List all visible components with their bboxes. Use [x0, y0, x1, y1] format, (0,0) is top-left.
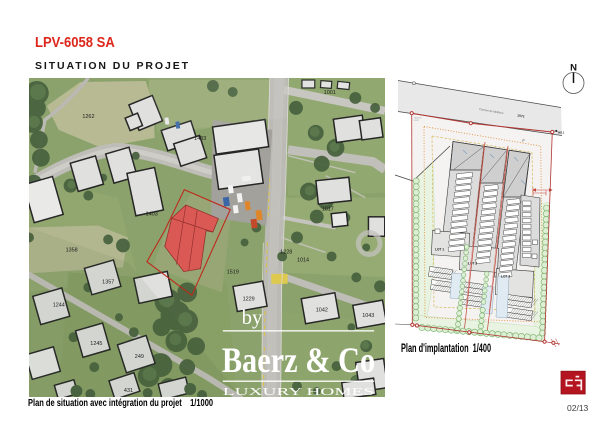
svg-text:1262: 1262: [82, 114, 94, 120]
svg-text:249: 249: [135, 354, 144, 360]
svg-text:LOT 2: LOT 2: [468, 262, 477, 266]
svg-text:1043: 1043: [362, 313, 374, 319]
svg-text:LUXURY HOMES: LUXURY HOMES: [223, 387, 375, 397]
svg-text:1519: 1519: [227, 269, 239, 275]
svg-text:LOT 3: LOT 3: [501, 275, 510, 279]
svg-text:N: N: [570, 63, 577, 74]
svg-text:1014: 1014: [297, 257, 309, 263]
svg-text:1358: 1358: [66, 247, 78, 253]
svg-text:431: 431: [124, 388, 133, 394]
svg-text:1071: 1071: [414, 120, 420, 122]
svg-text:1228: 1228: [280, 249, 292, 255]
svg-text:by: by: [242, 305, 263, 329]
svg-text:861.1: 861.1: [558, 131, 565, 135]
svg-text:1357: 1357: [102, 279, 114, 285]
svg-text:Baerz & Co: Baerz & Co: [222, 340, 375, 380]
svg-text:1245: 1245: [90, 341, 102, 347]
svg-text:1017: 1017: [322, 207, 334, 213]
svg-text:LOT 1: LOT 1: [435, 248, 444, 252]
svg-text:1001: 1001: [324, 90, 336, 96]
svg-text:1042: 1042: [316, 307, 328, 313]
svg-text:1433: 1433: [194, 136, 206, 142]
svg-text:1403: 1403: [146, 212, 158, 218]
svg-text:1244: 1244: [53, 302, 65, 308]
svg-text:1229: 1229: [243, 296, 255, 302]
